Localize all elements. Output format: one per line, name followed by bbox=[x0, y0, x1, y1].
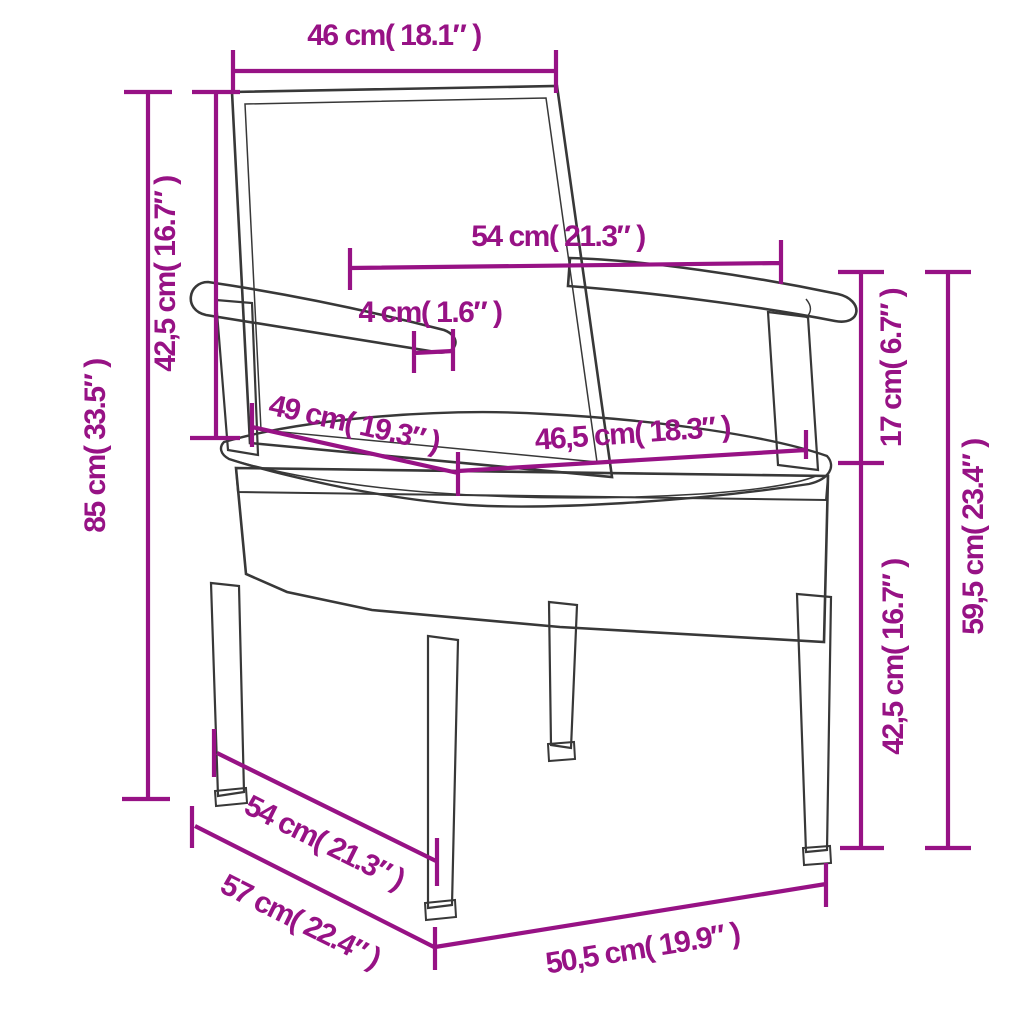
dimension-seat-depth: 49 cm( 19.3″ ) bbox=[252, 389, 458, 496]
front-left-foot bbox=[215, 788, 247, 806]
chair-right-armrest bbox=[568, 258, 856, 322]
dim-label-backrest-height: 42,5 cm( 16.7″ ) bbox=[149, 176, 182, 372]
dimension-backrest-height: 42,5 cm( 16.7″ ) bbox=[149, 92, 240, 438]
chair-legs bbox=[211, 583, 831, 920]
dimension-seat-width: 46,5 cm( 18.3″ ) bbox=[458, 410, 806, 471]
dimension-arm-above-seat: 17 cm( 6.7″ ) bbox=[838, 272, 908, 463]
dim-label-armrest-span: 54 cm( 21.3″ ) bbox=[471, 220, 645, 253]
chair-cushion-seam bbox=[229, 459, 816, 498]
chair-dimension-drawing: 46 cm( 18.1″ ) 85 cm( 33.5″ ) 42,5 cm( 1… bbox=[0, 0, 1024, 1024]
back-left-leg bbox=[549, 602, 577, 748]
dim-label-seat-width: 46,5 cm( 18.3″ ) bbox=[534, 410, 732, 457]
front-right-leg bbox=[428, 636, 458, 908]
dimension-base-depth: 54 cm( 21.3″ ) bbox=[214, 729, 437, 896]
dimension-base-width: 50,5 cm( 19.9″ ) bbox=[435, 863, 826, 981]
back-right-leg bbox=[797, 594, 831, 852]
dimension-seat-height: 42,5 cm( 16.7″ ) bbox=[840, 463, 910, 848]
dimension-backrest-width: 46 cm( 18.1″ ) bbox=[233, 19, 556, 93]
dim-label-seat-height: 42,5 cm( 16.7″ ) bbox=[877, 559, 910, 755]
chair-illustration bbox=[191, 86, 857, 920]
dim-label-backrest-width: 46 cm( 18.1″ ) bbox=[307, 19, 481, 52]
dimension-diagram: 46 cm( 18.1″ ) 85 cm( 33.5″ ) 42,5 cm( 1… bbox=[0, 0, 1024, 1024]
dim-label-armrest-thickness: 4 cm( 1.6″ ) bbox=[358, 296, 502, 329]
dimension-armrest-thickness: 4 cm( 1.6″ ) bbox=[358, 296, 502, 373]
dim-label-total-height: 85 cm( 33.5″ ) bbox=[79, 359, 112, 533]
dimension-armrest-span: 54 cm( 21.3″ ) bbox=[350, 220, 781, 290]
dim-label-arm-above-seat: 17 cm( 6.7″ ) bbox=[875, 288, 908, 447]
dim-label-overall-depth: 57 cm( 22.4″ ) bbox=[215, 868, 385, 975]
dim-label-armrest-height: 59,5 cm( 23.4″ ) bbox=[957, 439, 990, 635]
dimension-armrest-height: 59,5 cm( 23.4″ ) bbox=[925, 272, 990, 848]
